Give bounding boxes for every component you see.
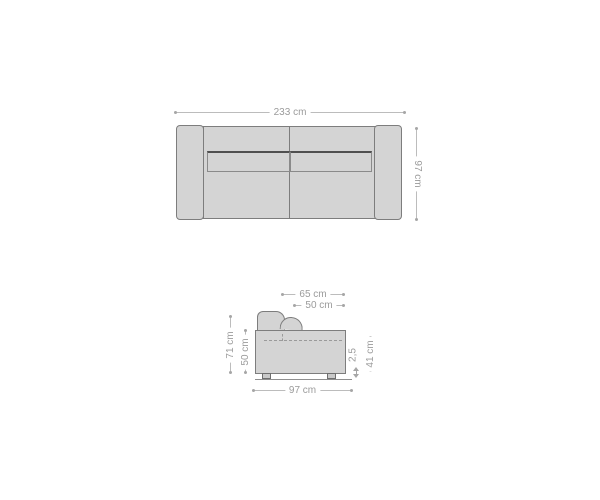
dim-clearance: 2,5: [347, 344, 359, 366]
dim-endpoint-dot: [244, 329, 247, 332]
dim-endpoint-dot: [229, 315, 232, 318]
back-cushion-left: [207, 151, 290, 172]
dim-label-overall-width: 233 cm: [270, 107, 311, 119]
dim-endpoint-dot: [350, 389, 353, 392]
arrow-down-icon: [353, 374, 359, 378]
dim-endpoint-dot: [281, 293, 284, 296]
dim-total-height: 71 cm: [225, 316, 236, 373]
dim-endpoint-dot: [415, 218, 418, 221]
dim-label-overall-depth: 97 cm: [411, 156, 423, 191]
dim-endpoint-dot: [415, 127, 418, 130]
arrow-up-icon: [353, 367, 359, 371]
dim-endpoint-dot: [174, 111, 177, 114]
dim-seat-height: 41 cm: [365, 337, 376, 371]
floor-line: [255, 379, 352, 380]
dim-endpoint-dot: [342, 304, 345, 307]
product-dimension-diagram: 233 cm 97 cm 65 cm 50 cm: [0, 0, 600, 500]
dim-overall-width: 233 cm: [175, 107, 405, 118]
dim-label-total-height: 71 cm: [225, 327, 237, 362]
dim-endpoint-dot: [244, 371, 247, 374]
sofa-side-body: [255, 330, 346, 374]
back-cushion-side-profile: [280, 316, 304, 331]
dim-body-height: 50 cm: [240, 330, 251, 373]
armrest-left: [176, 125, 204, 220]
dim-label-clearance: 2,5: [347, 346, 360, 364]
dim-endpoint-dot: [252, 389, 255, 392]
dim-label-seat-depth-inner: 50 cm: [301, 300, 336, 312]
dim-seat-depth-outer: 65 cm: [282, 289, 344, 300]
dim-endpoint-dot: [403, 111, 406, 114]
dim-total-depth: 97 cm: [253, 385, 352, 396]
dim-seat-depth-inner: 50 cm: [294, 300, 344, 311]
seat-divider-line: [289, 127, 290, 218]
dim-label-seat-height: 41 cm: [365, 336, 377, 371]
back-cushion-right: [290, 151, 372, 172]
armrest-right: [374, 125, 402, 220]
dim-endpoint-dot: [342, 293, 345, 296]
clearance-double-arrow: [353, 367, 359, 378]
dim-label-total-depth: 97 cm: [285, 385, 320, 397]
cushion-hidden-edge-dashed-line: [282, 334, 283, 341]
dim-overall-depth: 97 cm: [411, 128, 422, 220]
dim-label-body-height: 50 cm: [240, 334, 252, 369]
dim-endpoint-dot: [293, 304, 296, 307]
dim-endpoint-dot: [229, 371, 232, 374]
seat-hidden-edge-dashed-line: [264, 340, 342, 341]
